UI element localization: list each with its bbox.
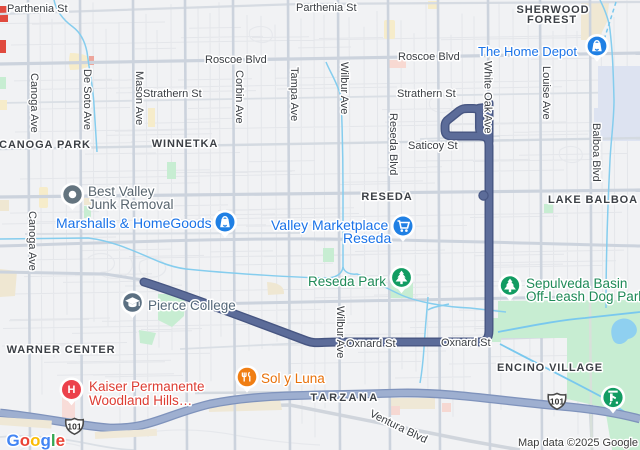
svg-text:Junk Removal: Junk Removal bbox=[88, 197, 174, 212]
svg-text:Strathern St: Strathern St bbox=[397, 88, 456, 100]
svg-text:Parthenia St: Parthenia St bbox=[7, 3, 68, 15]
svg-text:Corbin Ave: Corbin Ave bbox=[233, 70, 245, 124]
svg-text:Map data ©2025 Google: Map data ©2025 Google bbox=[518, 437, 638, 449]
svg-text:Reseda: Reseda bbox=[343, 230, 391, 246]
svg-text:Parthenia St: Parthenia St bbox=[296, 2, 357, 14]
svg-text:Reseda Blvd: Reseda Blvd bbox=[387, 113, 399, 175]
svg-text:RESEDA: RESEDA bbox=[361, 191, 412, 203]
svg-text:Google: Google bbox=[7, 431, 66, 450]
svg-text:Balboa Blvd: Balboa Blvd bbox=[590, 123, 602, 182]
svg-text:Off-Leash Dog Park: Off-Leash Dog Park bbox=[526, 289, 640, 304]
svg-text:De Soto Ave: De Soto Ave bbox=[81, 69, 93, 130]
svg-text:WINNETKA: WINNETKA bbox=[152, 138, 218, 150]
svg-text:Woodland Hills…: Woodland Hills… bbox=[89, 393, 192, 408]
svg-text:Sol y Luna: Sol y Luna bbox=[261, 371, 325, 386]
svg-text:The Home Depot: The Home Depot bbox=[478, 44, 577, 59]
svg-text:Strathern St: Strathern St bbox=[143, 88, 202, 100]
svg-text:ENCINO VILLAGE: ENCINO VILLAGE bbox=[497, 362, 603, 374]
svg-text:101: 101 bbox=[550, 397, 564, 407]
svg-text:WARNER CENTER: WARNER CENTER bbox=[7, 344, 116, 356]
svg-text:Oxnard St: Oxnard St bbox=[346, 338, 396, 350]
svg-text:Louise Ave: Louise Ave bbox=[540, 66, 552, 120]
svg-text:Canoga Ave: Canoga Ave bbox=[26, 211, 38, 271]
svg-text:101: 101 bbox=[67, 422, 81, 432]
svg-text:Canoga Ave: Canoga Ave bbox=[28, 73, 40, 133]
svg-text:TARZANA: TARZANA bbox=[310, 392, 379, 404]
svg-text:Pierce College: Pierce College bbox=[148, 298, 236, 313]
svg-text:Wilbur Ave: Wilbur Ave bbox=[338, 62, 350, 114]
svg-text:Mason Ave: Mason Ave bbox=[133, 71, 145, 125]
svg-text:Roscoe Blvd: Roscoe Blvd bbox=[398, 51, 460, 63]
svg-text:CANOGA PARK: CANOGA PARK bbox=[0, 139, 91, 151]
svg-text:FOREST: FOREST bbox=[527, 14, 577, 26]
svg-text:LAKE BALBOA: LAKE BALBOA bbox=[548, 194, 638, 206]
svg-text:H: H bbox=[68, 384, 76, 396]
svg-text:Kaiser Permanente: Kaiser Permanente bbox=[89, 379, 205, 394]
svg-text:Saticoy St: Saticoy St bbox=[408, 140, 458, 152]
svg-text:White Oak Ave: White Oak Ave bbox=[482, 61, 494, 134]
svg-text:Oxnard St: Oxnard St bbox=[441, 337, 491, 349]
svg-text:Roscoe Blvd: Roscoe Blvd bbox=[205, 54, 267, 66]
svg-text:Wilbur Ave: Wilbur Ave bbox=[334, 306, 346, 358]
svg-text:Tampa Ave: Tampa Ave bbox=[288, 67, 300, 121]
svg-text:Reseda Park: Reseda Park bbox=[308, 274, 386, 289]
svg-text:Marshalls & HomeGoods: Marshalls & HomeGoods bbox=[56, 215, 212, 231]
